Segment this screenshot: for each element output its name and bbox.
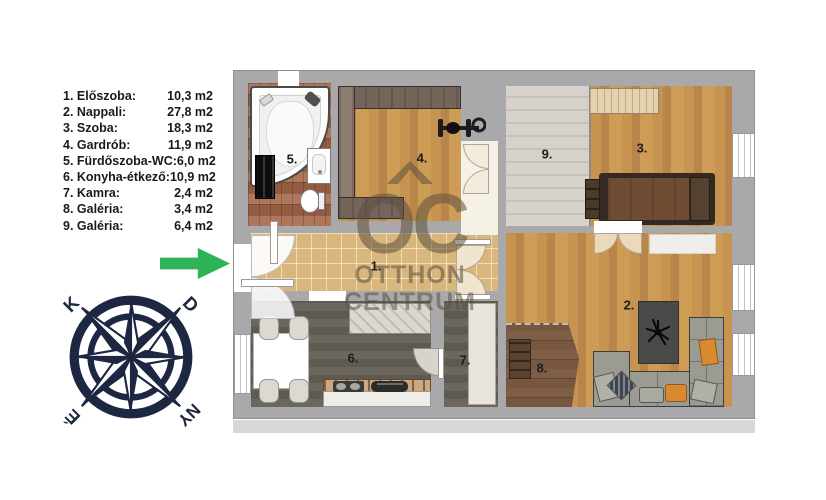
bathroom-sink (307, 148, 331, 184)
pavement-strip (233, 420, 755, 433)
kitchen-sink (333, 381, 364, 392)
headboard (690, 177, 710, 221)
pillow-orange (698, 338, 718, 366)
room-label-1: 1. (371, 259, 382, 274)
door-leaf (454, 239, 491, 245)
window-top (278, 71, 299, 86)
chair (259, 379, 279, 403)
white-rug (649, 234, 716, 254)
wardrobe-bottom (338, 197, 404, 219)
room-label-8: 8. (537, 361, 548, 376)
legend-room-name: 1. Előszoba: (63, 88, 136, 104)
legend-room-name: 7. Kamra: (63, 185, 120, 201)
legend-room-name: 8. Galéria: (63, 201, 123, 217)
legend-room-area: 6,4 m2 (174, 218, 213, 234)
compass-rose-icon: K D É NY (60, 286, 202, 428)
legend-row: 9. Galéria:6,4 m2 (63, 218, 213, 234)
pillow-orange (665, 384, 687, 402)
window-right-nappali-2 (732, 333, 755, 376)
legend-room-area: 18,3 m2 (167, 120, 213, 136)
staircase (589, 88, 659, 114)
legend-room-area: 10,9 m2 (170, 169, 216, 185)
legend-row: 2. Nappali:27,8 m2 (63, 104, 213, 120)
room-label-7: 7. (460, 353, 471, 368)
wardrobe-top (338, 86, 461, 109)
window-right-szoba (732, 133, 755, 178)
exercise-bike (436, 115, 486, 141)
door-leaf (241, 279, 294, 287)
floor-plan: 1. 2. 3. 4. 5. 6. 7. 8. 9. (233, 70, 755, 419)
loft-ladder (509, 339, 531, 379)
legend-room-area: 27,8 m2 (167, 104, 213, 120)
legend-row: 3. Szoba:18,3 m2 (63, 120, 213, 136)
legend-room-name: 6. Konyha-étkező: (63, 169, 170, 185)
legend-room-name: 9. Galéria: (63, 218, 123, 234)
toilet-tank (318, 192, 325, 210)
room-label-5: 5. (287, 152, 298, 167)
room-legend: 1. Előszoba:10,3 m2 2. Nappali:27,8 m2 3… (63, 88, 213, 234)
chair (289, 379, 309, 403)
legend-row: 7. Kamra:2,4 m2 (63, 185, 213, 201)
legend-room-name: 4. Gardrób: (63, 137, 130, 153)
door-leaf (454, 294, 491, 300)
compass-label-north: É (61, 405, 85, 428)
legend-row: 6. Konyha-étkező:10,9 m2 (63, 169, 213, 185)
legend-room-name: 3. Szoba: (63, 120, 118, 136)
toilet (300, 189, 320, 213)
legend-room-area: 11,9 m2 (168, 137, 213, 153)
room-label-3: 3. (637, 141, 648, 156)
legend-row: 8. Galéria:3,4 m2 (63, 201, 213, 217)
galeria-dashed-edge (506, 323, 568, 325)
stove (371, 381, 408, 392)
door-leaf (270, 221, 278, 264)
room-label-9: 9. (542, 147, 553, 162)
legend-room-name: 5. Fürdőszoba-WC: (63, 153, 177, 169)
legend-row: 4. Gardrób:11,9 m2 (63, 137, 213, 153)
kitchen-island-counter (349, 303, 431, 334)
radiator (255, 155, 275, 199)
bed (599, 173, 715, 225)
pantry-shelf (468, 303, 496, 405)
floorplan-page: 1. Előszoba:10,3 m2 2. Nappali:27,8 m2 3… (0, 0, 826, 500)
window-right-nappali-1 (732, 264, 755, 311)
room-label-6: 6. (348, 351, 359, 366)
double-door-opening (594, 221, 642, 233)
compass-label-east: K (60, 292, 84, 317)
legend-room-area: 2,4 m2 (174, 185, 213, 201)
entrance-arrow-icon (160, 245, 230, 282)
kitchen-opening (309, 291, 346, 301)
legend-room-area: 10,3 m2 (167, 88, 213, 104)
window-left-konyha (234, 334, 251, 394)
room-label-2: 2. (624, 298, 635, 313)
legend-row: 5. Fürdőszoba-WC:6,0 m2 (63, 153, 213, 169)
legend-room-area: 3,4 m2 (174, 201, 213, 217)
door-leaf (438, 348, 444, 379)
compass-label-south: D (179, 292, 202, 316)
chair (289, 316, 309, 340)
legend-room-area: 6,0 m2 (177, 153, 216, 169)
landing-opening (461, 219, 498, 235)
legend-row: 1. Előszoba:10,3 m2 (63, 88, 213, 104)
pillow-gray (639, 387, 664, 403)
chair (259, 316, 279, 340)
bedside-shelf (585, 179, 600, 219)
legend-room-name: 2. Nappali: (63, 104, 126, 120)
room-label-4: 4. (417, 151, 428, 166)
plant-icon (643, 317, 673, 347)
kitchen-counter-front (323, 391, 431, 407)
